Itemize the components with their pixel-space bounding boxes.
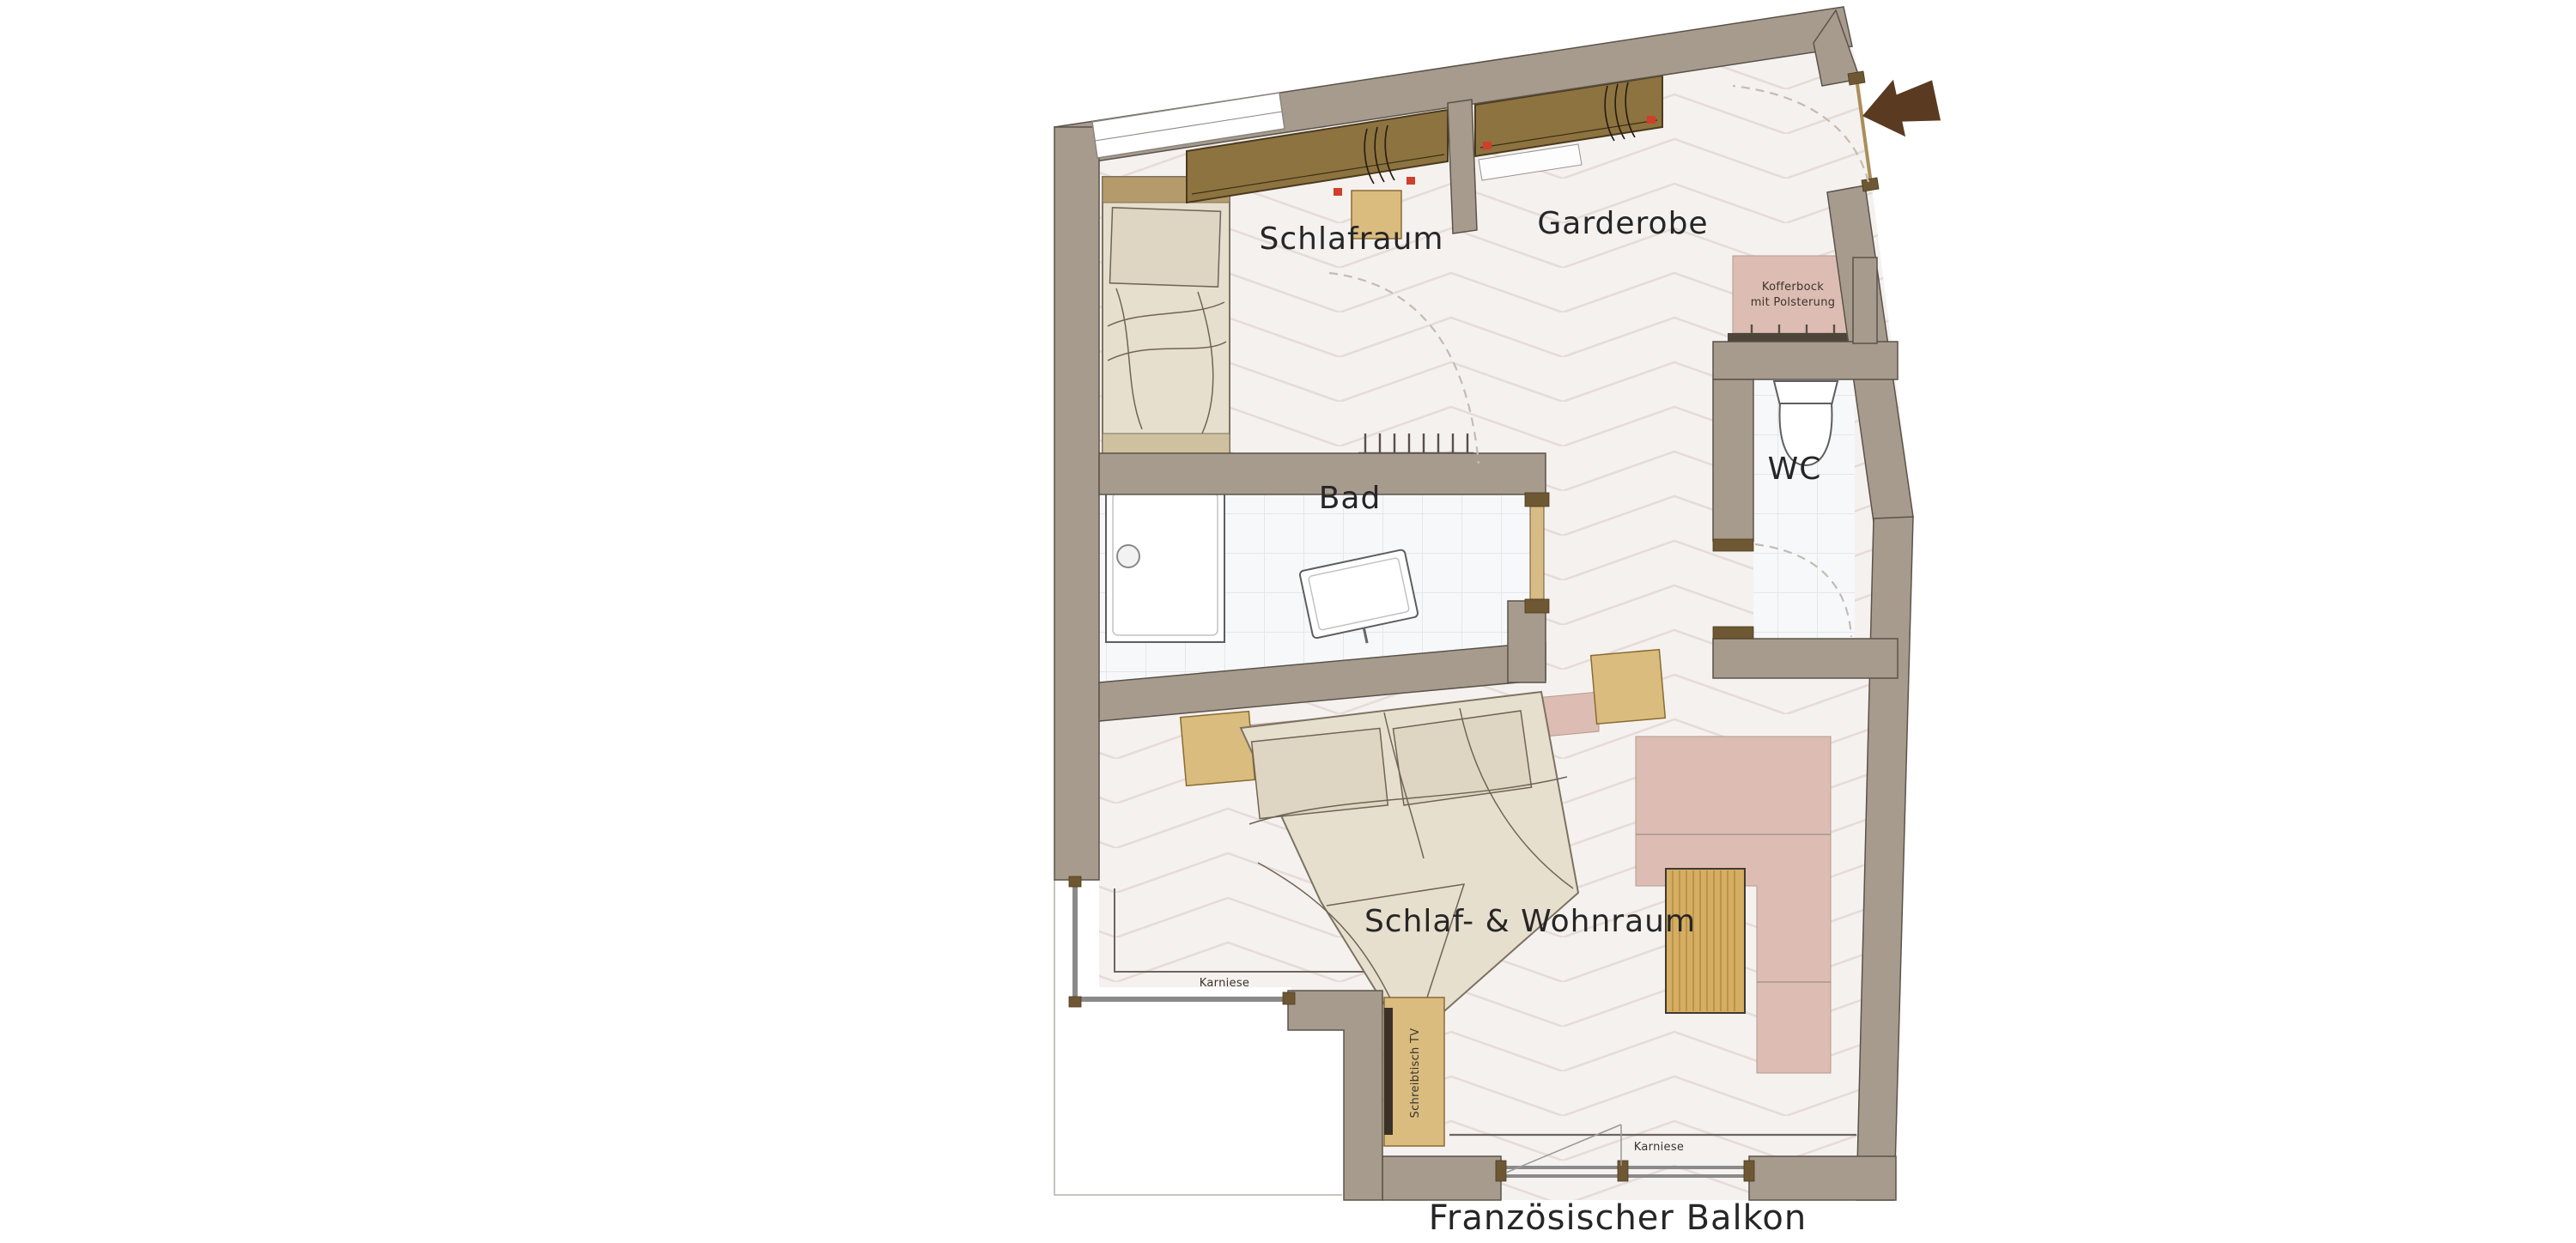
bedside-table-right [1591, 650, 1666, 725]
wall-wc-left [1713, 379, 1753, 541]
room-label-garderobe: Garderobe [1537, 206, 1708, 241]
label-karniese-left: Karniese [1200, 977, 1249, 990]
wall-bottom-right [1749, 1156, 1896, 1200]
single-bed [1103, 177, 1230, 470]
wall-bottom-left [1382, 1156, 1501, 1200]
entrance-arrow-icon [1856, 72, 1942, 145]
label-kofferbock-2: mit Polsterung [1751, 296, 1836, 309]
label-kofferbock-1: Kofferbock [1762, 281, 1824, 294]
wall-left [1054, 127, 1099, 880]
label-balkon: Französischer Balkon [1429, 1198, 1807, 1238]
coffee-table [1666, 869, 1745, 1013]
shower [1106, 486, 1224, 642]
wall-step [1288, 991, 1382, 1200]
floor-plan: Schlafraum Garderobe Bad WC Schlaf- & Wo… [0, 0, 2576, 1243]
floor-plan-canvas: Schlafraum Garderobe Bad WC Schlaf- & Wo… [0, 0, 2576, 1243]
wall-niche [1853, 258, 1877, 343]
label-schreibtisch: Schreibtisch TV [1409, 1028, 1422, 1119]
bedside-table-left [1181, 712, 1255, 786]
room-label-schlafraum: Schlafraum [1260, 221, 1444, 257]
wall-wc-bottom [1713, 639, 1898, 678]
label-karniese-bottom: Karniese [1634, 1141, 1684, 1154]
room-label-bad: Bad [1319, 481, 1382, 516]
room-label-wohnraum: Schlaf- & Wohnraum [1364, 904, 1696, 939]
wall-partition [1448, 100, 1477, 233]
room-label-wc: WC [1768, 452, 1822, 487]
wall-wc-top [1713, 342, 1898, 379]
